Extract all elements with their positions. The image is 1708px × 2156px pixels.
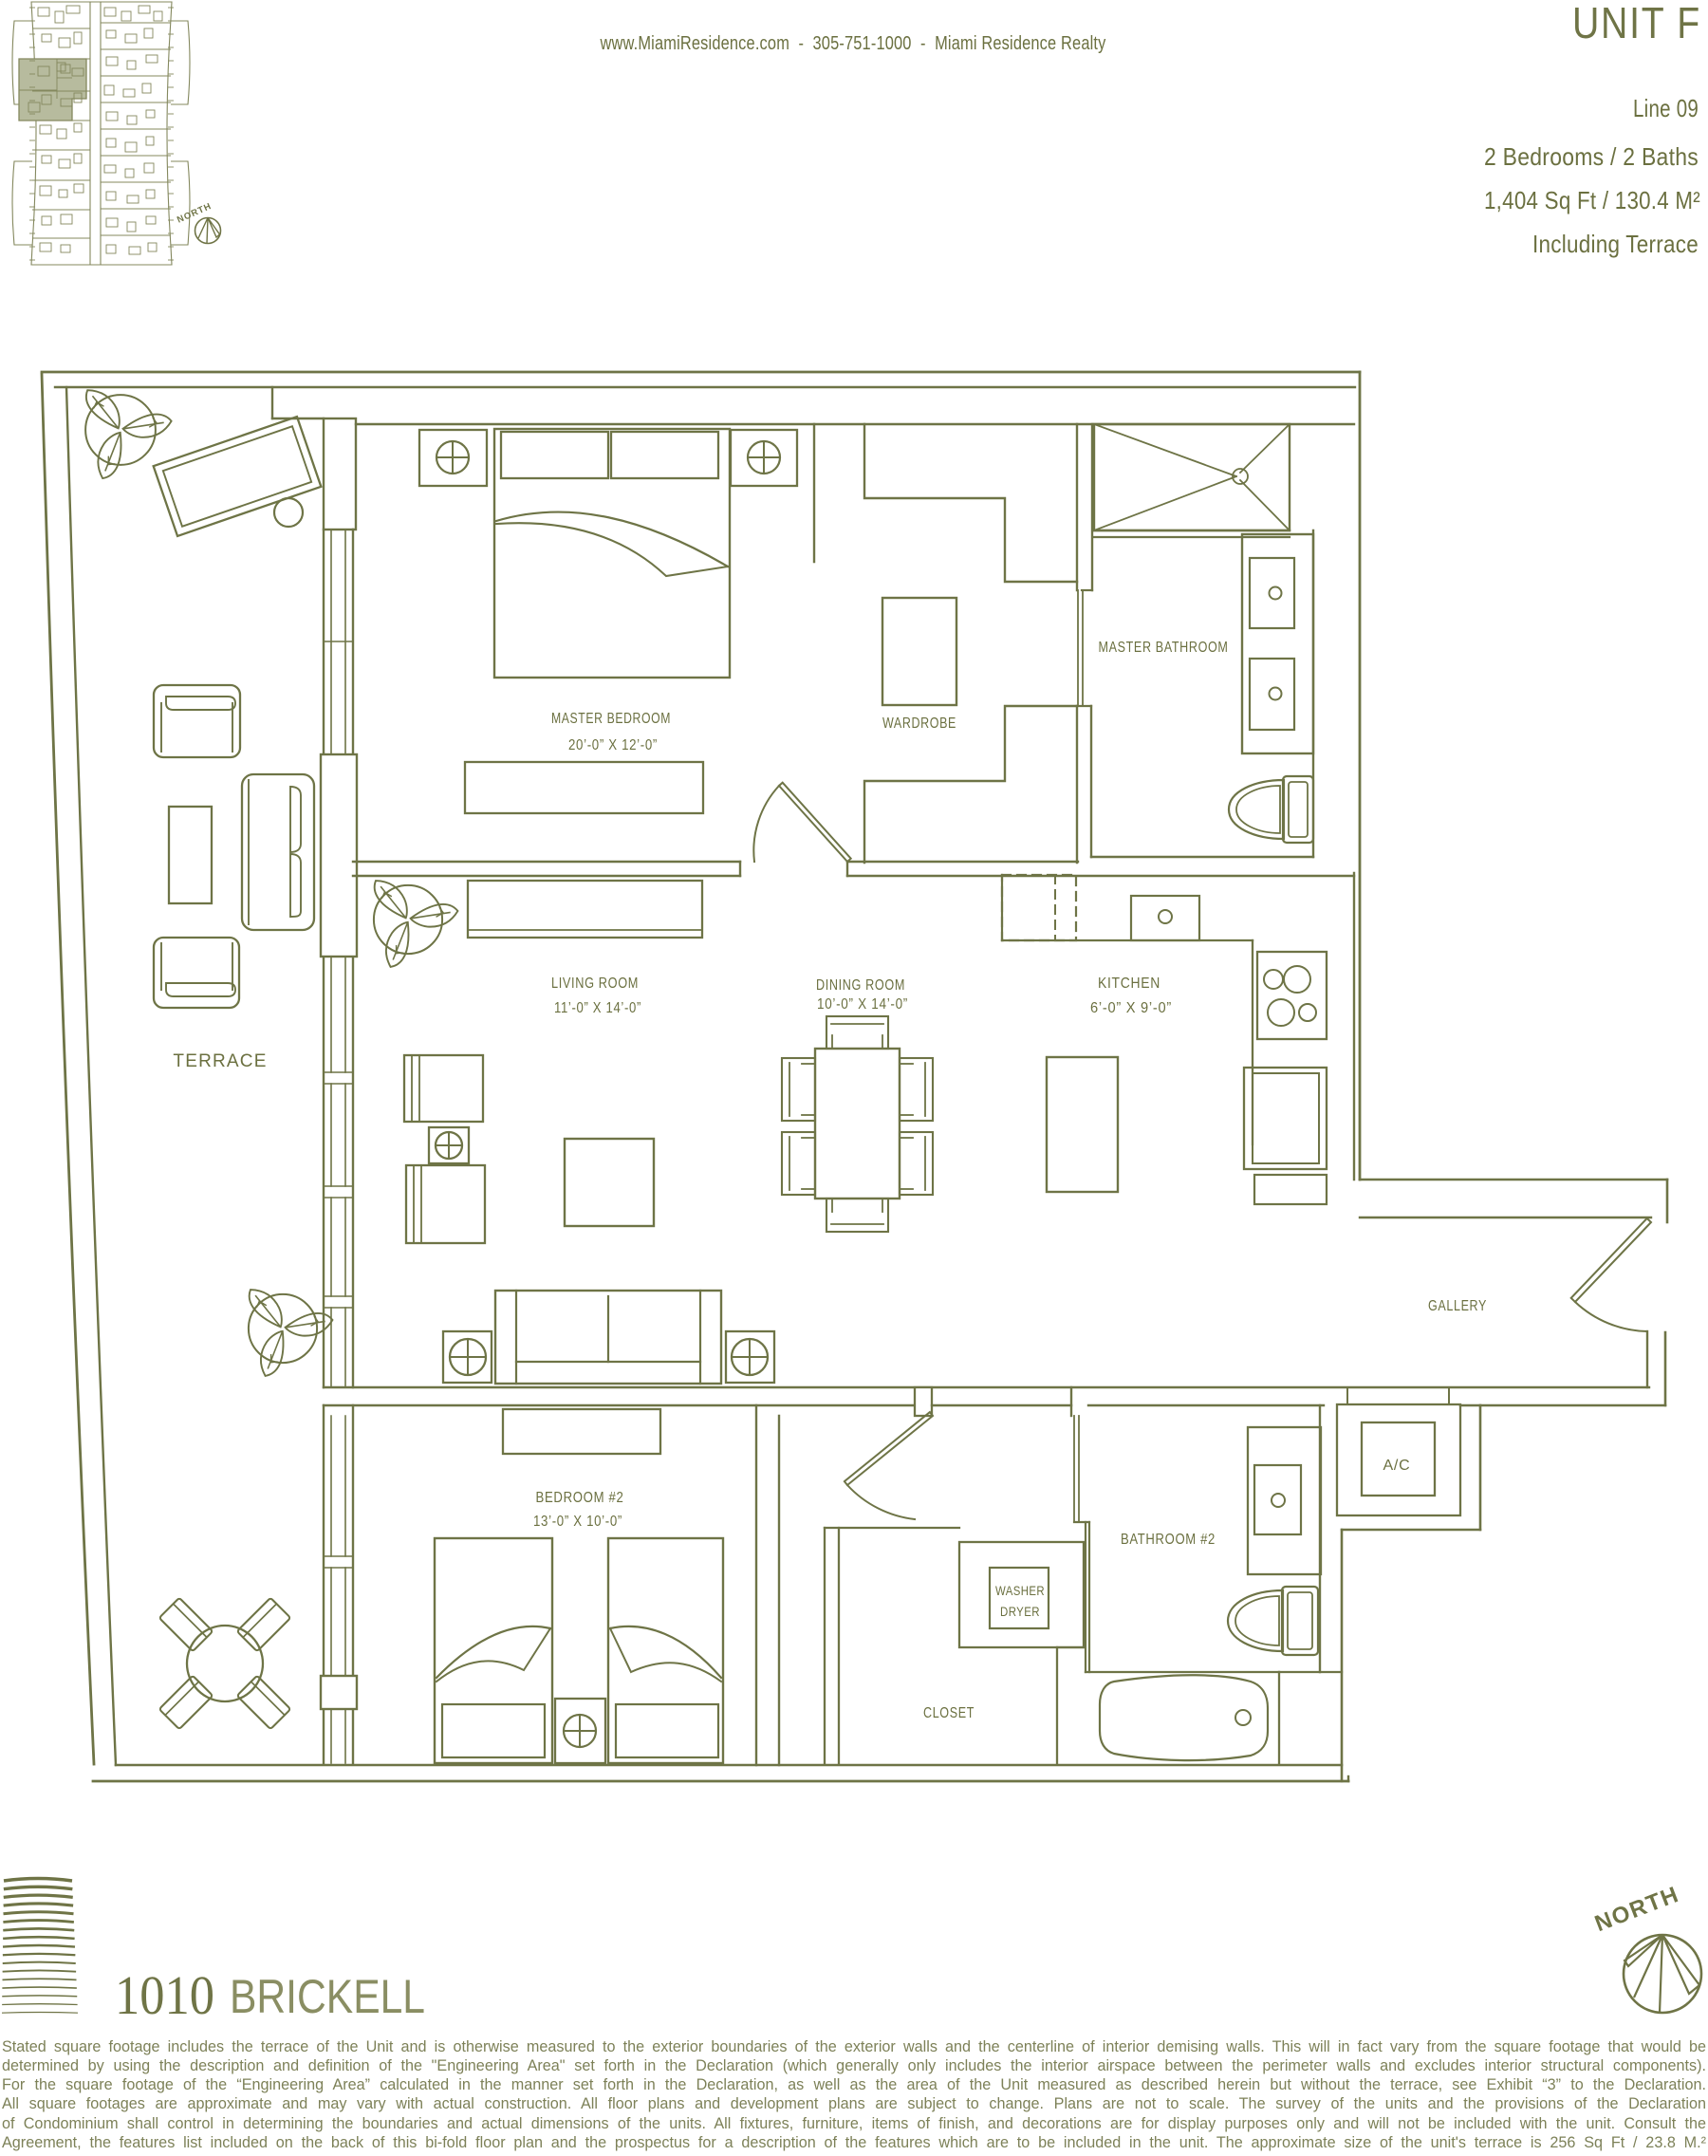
svg-text:CLOSET: CLOSET [923,1705,975,1721]
svg-text:KITCHEN: KITCHEN [1098,976,1160,992]
svg-text:DRYER: DRYER [1000,1604,1040,1619]
svg-text:NORTH: NORTH [1591,1882,1682,1937]
svg-text:Line 09: Line 09 [1633,94,1699,122]
svg-text:2 Bedrooms / 2 Baths: 2 Bedrooms / 2 Baths [1484,142,1699,171]
svg-text:MASTER BATHROOM: MASTER BATHROOM [1099,640,1229,656]
svg-text:10’-0” X 14’-0”: 10’-0” X 14’-0” [817,996,908,1013]
svg-text:Including Terrace: Including Terrace [1532,230,1699,258]
svg-text:20’-0” X 12’-0”: 20’-0” X 12’-0” [568,737,658,753]
svg-text:13’-0” X 10’-0”: 13’-0” X 10’-0” [533,1514,622,1530]
svg-text:A/C: A/C [1383,1458,1410,1474]
svg-text:WARDROBE: WARDROBE [882,716,956,732]
svg-text:www.MiamiResidence.com - 305: www.MiamiResidence.com - 305-751-1000 - … [600,33,1106,54]
svg-text:6’-0” X 9’-0”: 6’-0” X 9’-0” [1090,1000,1172,1016]
svg-text:LIVING ROOM: LIVING ROOM [551,976,639,992]
svg-text:11’-0” X 14’-0”: 11’-0” X 14’-0” [554,1000,641,1016]
svg-text:WASHER: WASHER [995,1583,1045,1598]
svg-text:UNIT F: UNIT F [1572,0,1701,47]
svg-text:TERRACE: TERRACE [173,1051,267,1071]
svg-text:1,404 Sq Ft / 130.4 M²: 1,404 Sq Ft / 130.4 M² [1484,186,1700,214]
svg-text:GALLERY: GALLERY [1428,1298,1487,1314]
svg-text:1010: 1010 [115,1964,214,2026]
svg-text:BEDROOM #2: BEDROOM #2 [536,1490,624,1506]
svg-text:MASTER BEDROOM: MASTER BEDROOM [551,711,671,727]
svg-text:DINING ROOM: DINING ROOM [816,977,905,994]
svg-text:BATHROOM #2: BATHROOM #2 [1121,1532,1216,1548]
svg-text:BRICKELL: BRICKELL [230,1970,425,2023]
